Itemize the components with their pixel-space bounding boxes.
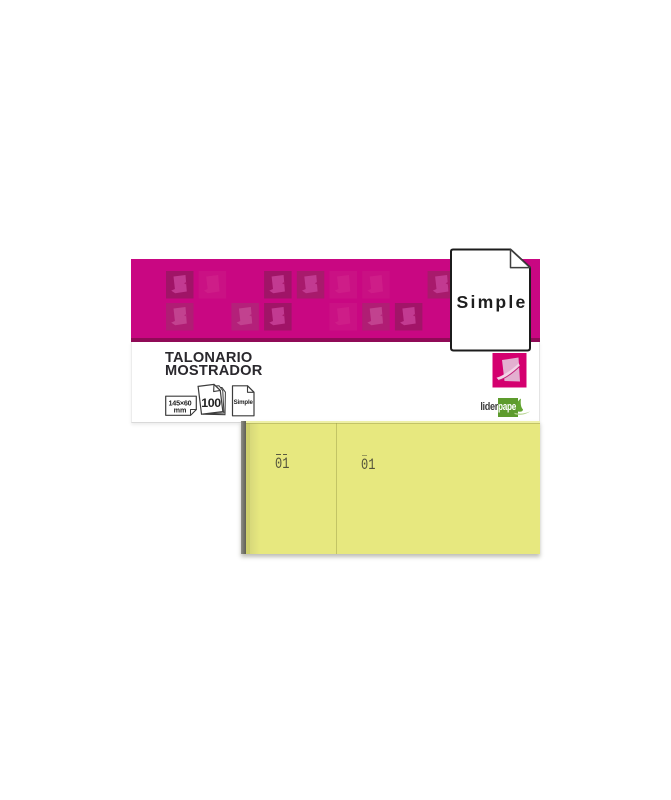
svg-text:mm: mm bbox=[174, 405, 187, 414]
svg-text:Simple: Simple bbox=[234, 399, 254, 406]
svg-text:100: 100 bbox=[201, 396, 221, 410]
